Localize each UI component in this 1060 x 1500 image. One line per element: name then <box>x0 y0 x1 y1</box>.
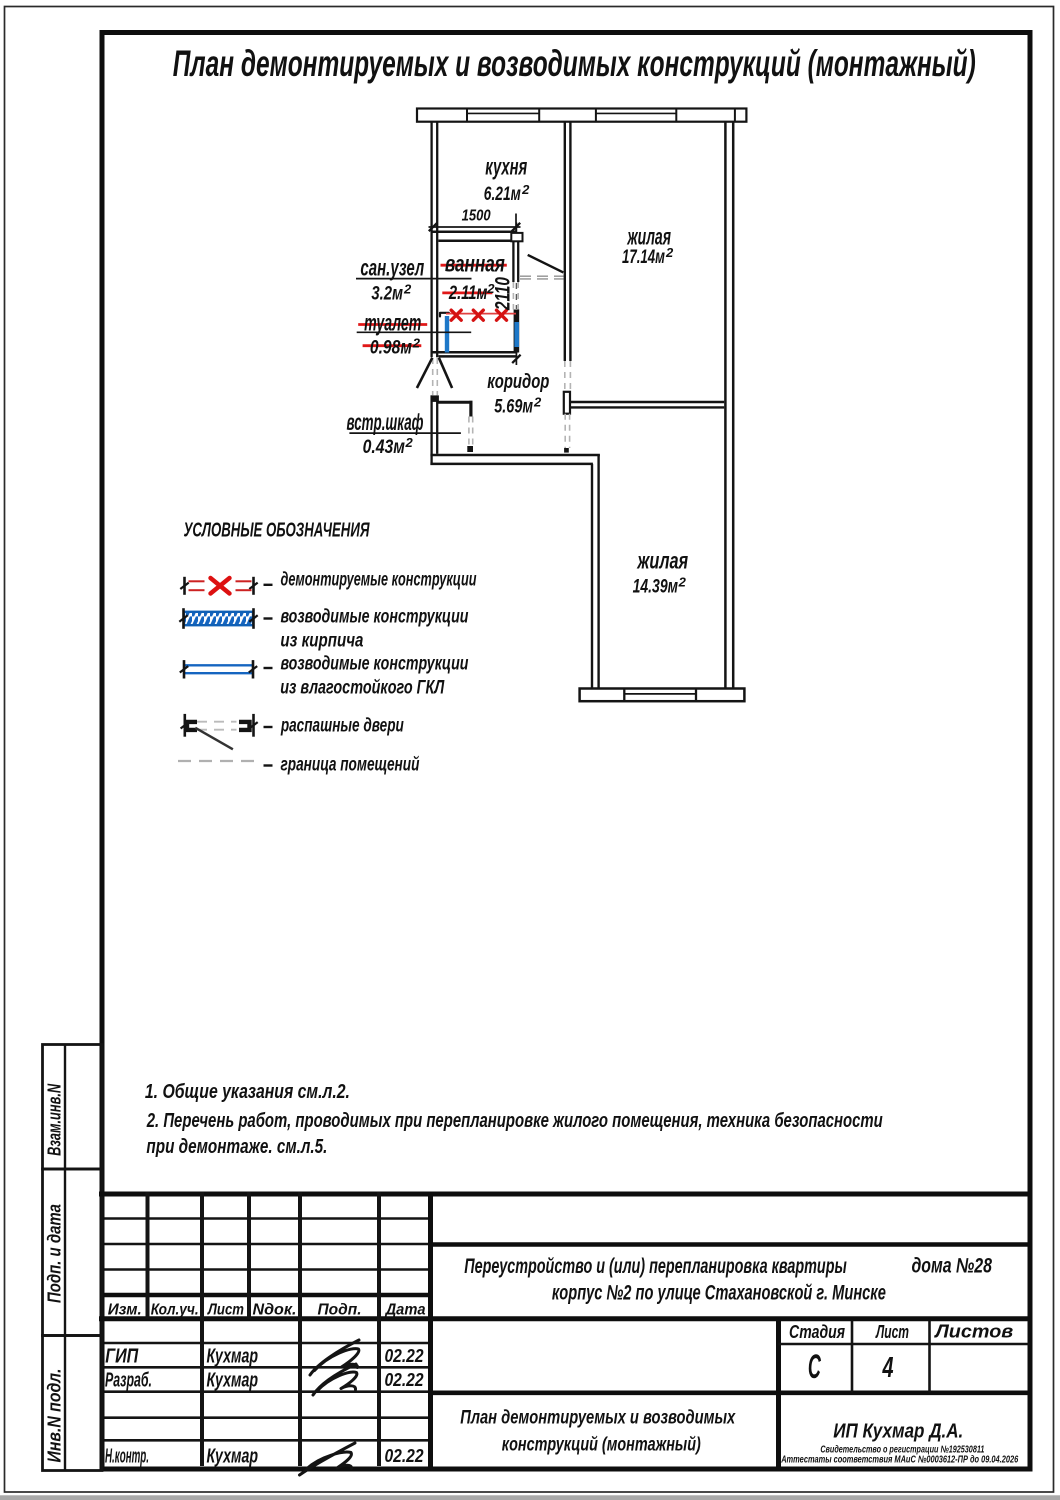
svg-text:встр.шкаф: встр.шкаф <box>347 409 424 435</box>
svg-text:План демонтируемых и возводимы: План демонтируемых и возводимых конструк… <box>173 43 976 84</box>
svg-text:Подп. и дата: Подп. и дата <box>45 1204 65 1303</box>
svg-text:Дата: Дата <box>384 1302 426 1319</box>
svg-text:ИП Кухмар Д.А.: ИП Кухмар Д.А. <box>833 1421 963 1443</box>
svg-text:Взам.инв.N: Взам.инв.N <box>45 1083 65 1156</box>
svg-text:2: 2 <box>533 395 542 410</box>
svg-text:1500: 1500 <box>462 208 491 225</box>
svg-text:дома №28: дома №28 <box>911 1255 992 1278</box>
svg-text:возводимые конструкции: возводимые конструкции <box>280 607 468 628</box>
svg-text:жилая: жилая <box>626 224 671 250</box>
svg-text:Кухмар: Кухмар <box>207 1346 259 1368</box>
svg-text:17.14м: 17.14м <box>622 247 665 268</box>
svg-text:туалет: туалет <box>364 309 421 335</box>
svg-text:2.11м: 2.11м <box>448 283 487 304</box>
svg-text:Аттестаты соответствия МАиС №0: Аттестаты соответствия МАиС №0003612-ПР … <box>780 1455 1018 1466</box>
svg-text:Листов: Листов <box>933 1322 1013 1342</box>
svg-text:Nдок.: Nдок. <box>253 1302 297 1319</box>
svg-text:Лист: Лист <box>207 1302 244 1319</box>
svg-text:УСЛОВНЫЕ ОБОЗНАЧЕНИЯ: УСЛОВНЫЕ ОБОЗНАЧЕНИЯ <box>183 520 369 542</box>
svg-text:ГИП: ГИП <box>105 1346 138 1368</box>
svg-text:3.2м: 3.2м <box>371 284 403 305</box>
svg-text:конструкций (монтажный): конструкций (монтажный) <box>502 1435 701 1456</box>
svg-text:из кирпича: из кирпича <box>280 631 363 652</box>
svg-text:2: 2 <box>678 575 687 590</box>
svg-text:2. Перечень работ, проводимых: 2. Перечень работ, проводимых при перепл… <box>146 1110 883 1132</box>
svg-text:02.22: 02.22 <box>385 1370 424 1390</box>
svg-text:02.22: 02.22 <box>385 1346 424 1366</box>
svg-text:Разраб.: Разраб. <box>105 1370 152 1392</box>
svg-text:5.69м: 5.69м <box>494 397 533 418</box>
svg-text:Лист: Лист <box>875 1322 909 1342</box>
svg-text:14.39м: 14.39м <box>633 577 678 598</box>
svg-text:2: 2 <box>521 182 530 197</box>
svg-text:02.22: 02.22 <box>385 1446 424 1466</box>
svg-text:План демонтируемых и возводимы: План демонтируемых и возводимых <box>460 1408 736 1429</box>
svg-text:Подп.: Подп. <box>318 1302 362 1319</box>
svg-text:1. Общие указания см.л.2.: 1. Общие указания см.л.2. <box>145 1081 350 1103</box>
svg-text:ванная: ванная <box>445 251 505 277</box>
svg-text:Изм.: Изм. <box>108 1302 142 1319</box>
svg-text:коридор: коридор <box>487 371 549 393</box>
svg-text:4: 4 <box>882 1352 894 1384</box>
svg-text:Инв.N подл.: Инв.N подл. <box>45 1369 65 1463</box>
svg-text:2: 2 <box>412 336 421 351</box>
svg-text:6.21м: 6.21м <box>484 184 521 205</box>
svg-text:граница помещений: граница помещений <box>280 755 419 776</box>
svg-text:демонтируемые конструкции: демонтируемые конструкции <box>280 570 476 591</box>
svg-text:0.98м: 0.98м <box>370 338 412 359</box>
svg-text:Стадия: Стадия <box>789 1322 845 1342</box>
svg-text:2110: 2110 <box>491 277 514 311</box>
svg-text:жилая: жилая <box>636 548 689 574</box>
svg-text:корпус №2 по улице Стахановско: корпус №2 по улице Стахановской г. Минск… <box>552 1282 886 1305</box>
svg-text:при демонтаже. см.л.5.: при демонтаже. см.л.5. <box>146 1136 327 1158</box>
svg-text:2: 2 <box>665 245 674 260</box>
svg-text:2: 2 <box>403 282 412 297</box>
svg-text:Кухмар: Кухмар <box>207 1446 259 1468</box>
svg-text:0.43м: 0.43м <box>363 437 405 458</box>
svg-text:кухня: кухня <box>485 154 527 180</box>
svg-text:из влагостойкого ГКЛ: из влагостойкого ГКЛ <box>280 678 445 699</box>
svg-text:Кухмар: Кухмар <box>207 1370 259 1392</box>
svg-text:Кол.уч.: Кол.уч. <box>151 1302 199 1319</box>
svg-text:возводимые конструкции: возводимые конструкции <box>280 654 468 675</box>
svg-text:С: С <box>808 1348 821 1386</box>
svg-text:сан.узел: сан.узел <box>360 254 424 280</box>
svg-text:Переустройство и (или) перепла: Переустройство и (или) перепланировка кв… <box>464 1255 847 1278</box>
svg-text:Н.контр.: Н.контр. <box>105 1446 149 1468</box>
svg-text:распашные двери: распашные двери <box>280 716 404 737</box>
svg-text:2: 2 <box>405 435 414 450</box>
